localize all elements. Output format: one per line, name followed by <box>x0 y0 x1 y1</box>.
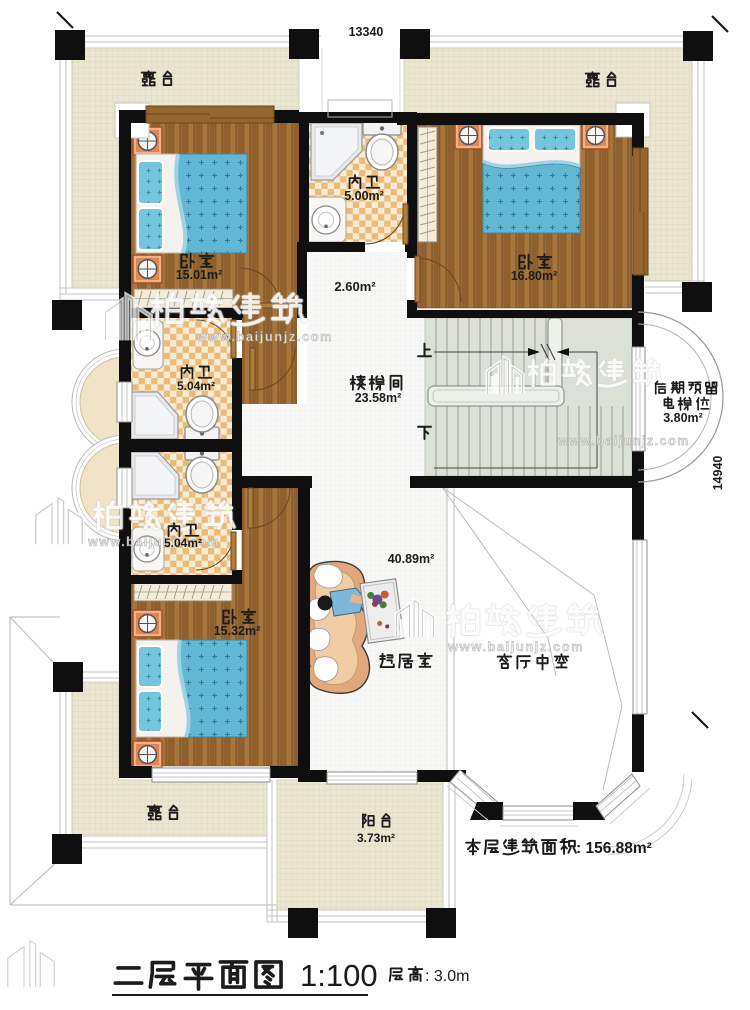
svg-text:16.80m²: 16.80m² <box>511 269 558 283</box>
svg-text:14940: 14940 <box>711 456 725 491</box>
svg-text:: 3.0m: : 3.0m <box>425 968 469 985</box>
svg-text:www.baijunjz.com: www.baijunjz.com <box>557 434 690 448</box>
svg-text:2.60m²: 2.60m² <box>334 279 376 294</box>
svg-text:5.04m²: 5.04m² <box>164 536 202 550</box>
svg-text:1:100: 1:100 <box>300 958 378 993</box>
svg-text:13340: 13340 <box>349 25 384 39</box>
svg-text:www.baijunjz.com: www.baijunjz.com <box>447 639 584 654</box>
svg-text:23.58m²: 23.58m² <box>355 391 402 405</box>
svg-text:5.04m²: 5.04m² <box>177 379 215 393</box>
svg-text:40.89m²: 40.89m² <box>388 552 435 566</box>
svg-text:15.01m²: 15.01m² <box>176 268 223 282</box>
svg-text:3.80m²: 3.80m² <box>663 411 703 425</box>
svg-text:: 156.88m²: : 156.88m² <box>576 840 652 857</box>
svg-text:www.baijunjz.com: www.baijunjz.com <box>196 329 333 344</box>
svg-text:3.73m²: 3.73m² <box>357 831 395 845</box>
svg-text:15.32m²: 15.32m² <box>214 624 261 638</box>
svg-text:5.00m²: 5.00m² <box>344 189 384 203</box>
